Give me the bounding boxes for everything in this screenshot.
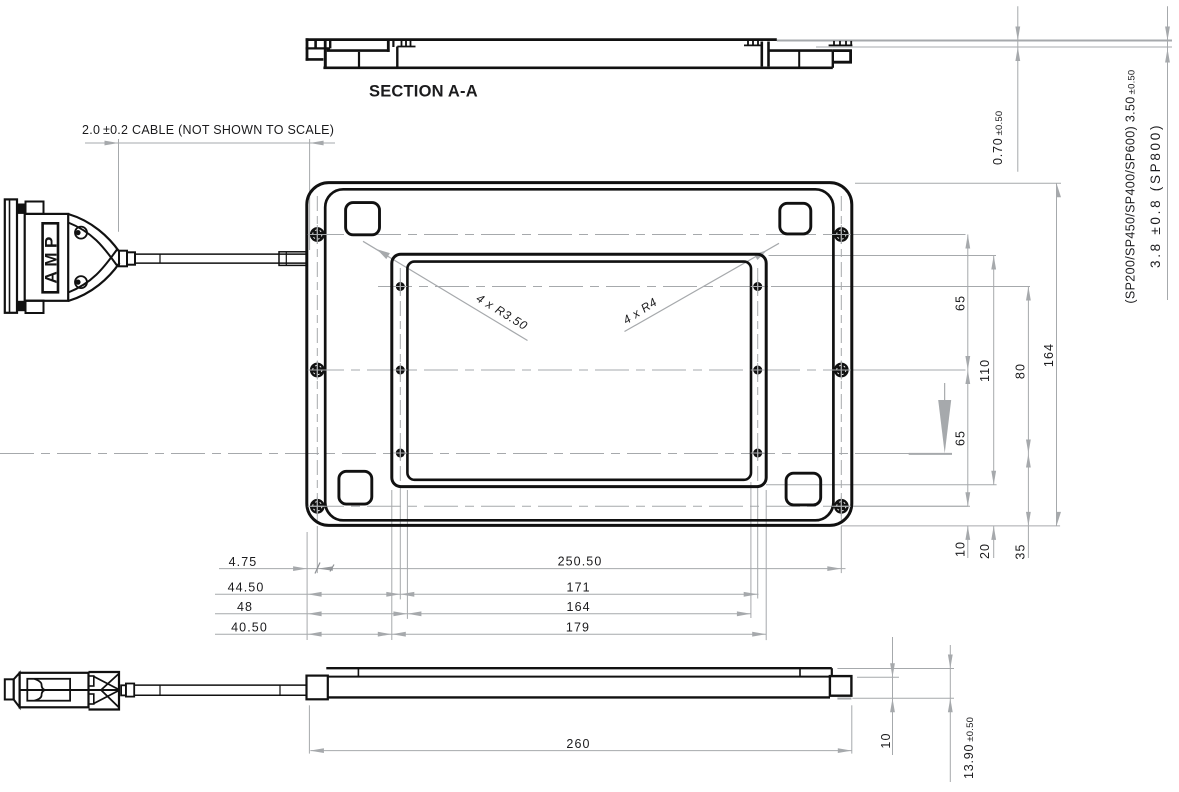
svg-text:44.50: 44.50 <box>228 581 265 595</box>
svg-text:SECTION A-A: SECTION A-A <box>369 83 478 101</box>
svg-text:2.0 ±0.2 CABLE (NOT SHOWN TO S: 2.0 ±0.2 CABLE (NOT SHOWN TO SCALE) <box>82 123 334 137</box>
svg-text:10: 10 <box>953 541 967 557</box>
svg-text:80: 80 <box>1014 363 1028 379</box>
svg-text:(SP200/SP450/SP400/SP600) 3.50: (SP200/SP450/SP400/SP600) 3.50 ±0.50 <box>1124 70 1138 304</box>
svg-text:13.90 ±0.50: 13.90 ±0.50 <box>962 717 976 779</box>
svg-text:164: 164 <box>1042 343 1056 367</box>
svg-text:40.50: 40.50 <box>231 621 268 635</box>
svg-text:260: 260 <box>566 737 590 751</box>
svg-text:3.8 ±0.8 (SP800): 3.8 ±0.8 (SP800) <box>1148 123 1163 268</box>
svg-text:179: 179 <box>566 621 590 635</box>
svg-text:110: 110 <box>978 359 992 382</box>
svg-text:10: 10 <box>879 732 893 748</box>
svg-text:65: 65 <box>953 295 967 311</box>
svg-text:250.50: 250.50 <box>558 555 603 569</box>
svg-text:AMP: AMP <box>41 232 60 283</box>
svg-text:48: 48 <box>237 600 253 614</box>
svg-text:20: 20 <box>978 543 992 559</box>
svg-text:164: 164 <box>567 600 591 614</box>
svg-text:0.70 ±0.50: 0.70 ±0.50 <box>991 111 1005 165</box>
svg-text:65: 65 <box>953 430 967 446</box>
svg-text:171: 171 <box>567 581 591 595</box>
svg-text:35: 35 <box>1014 543 1028 559</box>
svg-text:4.75: 4.75 <box>229 555 258 569</box>
